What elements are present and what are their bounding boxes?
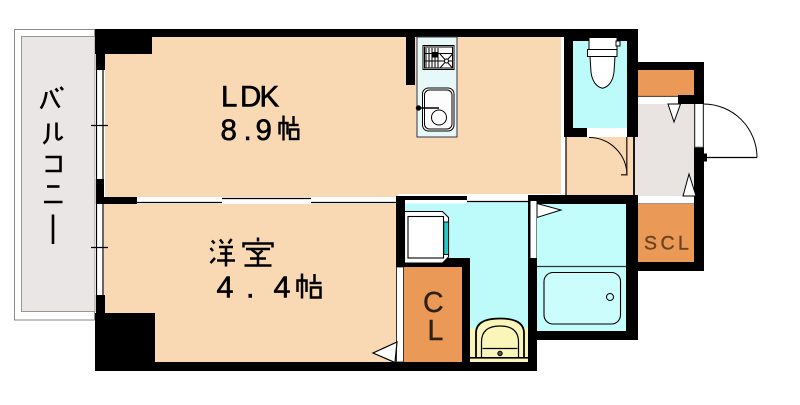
svg-text:D: D (240, 81, 261, 114)
svg-text:S: S (644, 233, 657, 255)
svg-text:L: L (221, 81, 237, 114)
svg-text:.: . (244, 114, 252, 147)
svg-text:8: 8 (221, 114, 237, 147)
svg-text:L: L (678, 233, 689, 255)
svg-text:4: 4 (274, 271, 291, 305)
svg-text:4: 4 (217, 271, 234, 305)
svg-text:.: . (246, 271, 254, 305)
svg-text:K: K (260, 81, 280, 114)
svg-text:L: L (428, 315, 444, 347)
svg-text:9: 9 (256, 114, 272, 147)
svg-text:C: C (661, 233, 675, 255)
